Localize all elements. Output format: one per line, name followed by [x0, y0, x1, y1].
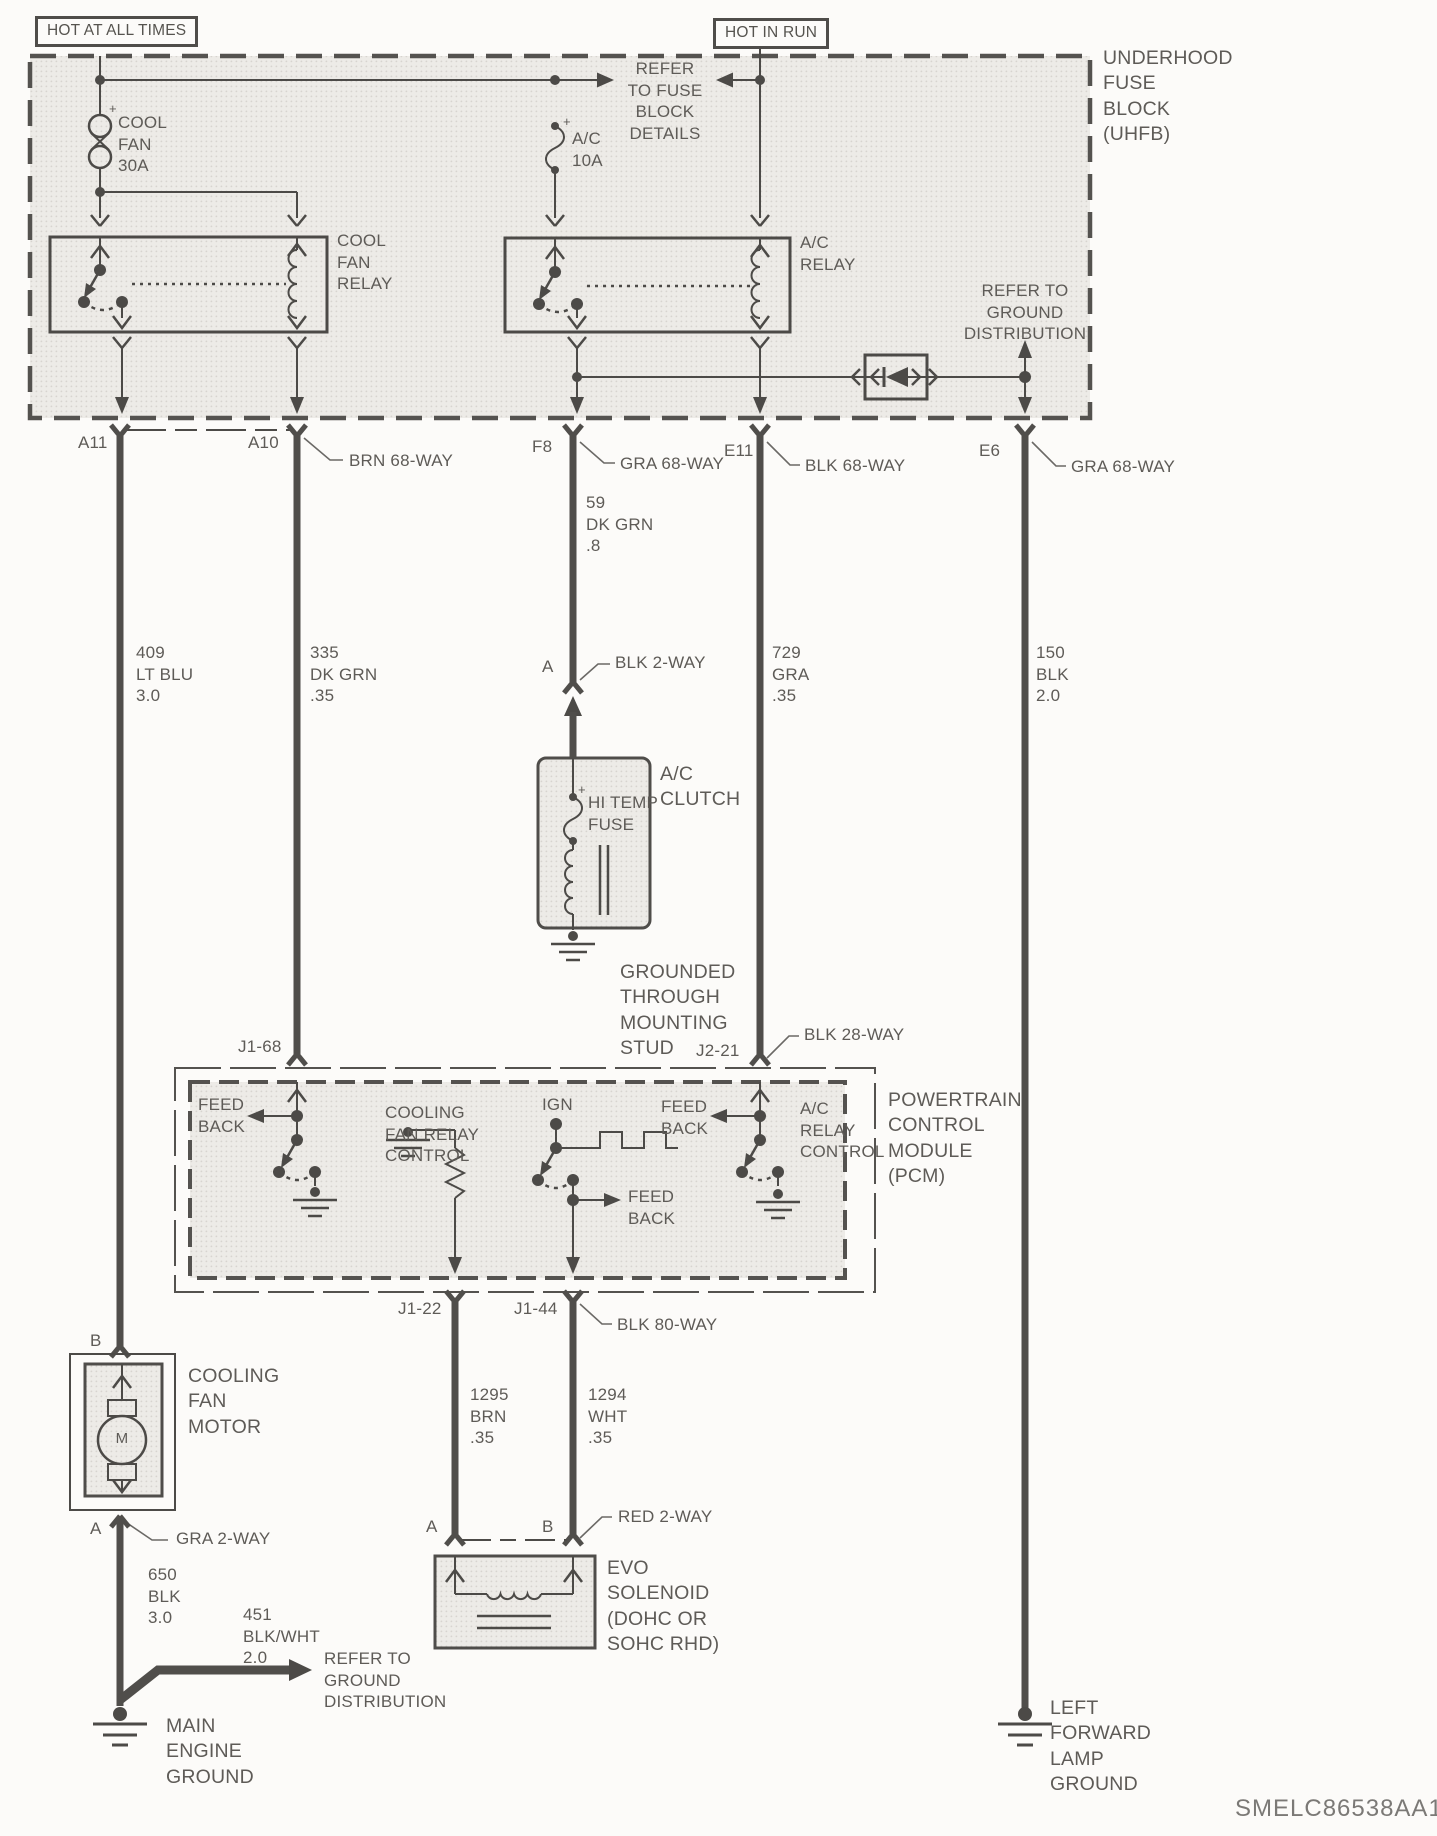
- pcm-title: POWERTRAIN CONTROL MODULE (PCM): [888, 1088, 1022, 1189]
- refer-fuse-details-note: REFER TO FUSE BLOCK DETAILS: [628, 58, 703, 144]
- cool-fan-fuse-label: COOL FAN 30A: [118, 112, 167, 177]
- hi-temp-fuse-plus: +: [578, 782, 586, 799]
- wire-729-gra: 729 GRA .35: [772, 642, 809, 707]
- conn-blk-80-way: BLK 80-WAY: [617, 1314, 717, 1336]
- feed-back-ign: FEED BACK: [628, 1186, 675, 1229]
- conn-gra-68-way-f8: GRA 68-WAY: [620, 453, 724, 475]
- pin-j2-21: J2-21: [696, 1040, 740, 1062]
- acrc-label: A/C RELAY CONTROL: [800, 1098, 885, 1163]
- cool-fan-fuse-plus: +: [109, 101, 117, 118]
- pin-a11: A11: [78, 432, 108, 454]
- pcm-output-wires: [446, 1291, 582, 1545]
- uhfb-title: UNDERHOOD FUSE BLOCK (UHFB): [1103, 46, 1233, 147]
- pin-e6: E6: [979, 440, 1000, 462]
- main-engine-ground-label: MAIN ENGINE GROUND: [166, 1714, 254, 1790]
- conn-brn-68-way: BRN 68-WAY: [349, 450, 453, 472]
- ac-clutch-title: A/C CLUTCH: [660, 762, 740, 813]
- evo-title: EVO SOLENOID (DOHC OR SOHC RHD): [607, 1556, 719, 1657]
- wire-1294-wht: 1294 WHT .35: [588, 1384, 627, 1449]
- ac-fuse-plus: +: [563, 114, 571, 131]
- wire-409-lt-blu: 409 LT BLU 3.0: [136, 642, 193, 707]
- pin-j1-68: J1-68: [238, 1036, 282, 1058]
- motor-pin-b: B: [90, 1330, 102, 1352]
- wiring-diagram-page: HOT AT ALL TIMES HOT IN RUN UNDERHOOD FU…: [0, 0, 1437, 1836]
- conn-blk-68-way: BLK 68-WAY: [805, 455, 905, 477]
- ac-fuse-label: A/C 10A: [572, 128, 603, 171]
- document-id: SMELC86538AA1: [1235, 1794, 1437, 1824]
- pcm-box: [175, 1068, 875, 1292]
- motor-pin-a: A: [90, 1518, 102, 1540]
- ac-clutch-symbol: [538, 758, 650, 960]
- left-forward-lamp-ground-label: LEFT FORWARD LAMP GROUND: [1050, 1696, 1151, 1797]
- ac-relay-label: A/C RELAY: [800, 232, 856, 275]
- pin-e11: E11: [724, 440, 754, 462]
- conn-blk-28-way: BLK 28-WAY: [804, 1024, 904, 1046]
- conn-gra-2-way: GRA 2-WAY: [176, 1528, 270, 1550]
- left-forward-lamp-ground-symbol: [998, 1707, 1052, 1745]
- wire-150-blk: 150 BLK 2.0: [1036, 642, 1069, 707]
- cooling-fan-motor-symbol: [70, 1354, 175, 1706]
- pin-f8: F8: [532, 436, 552, 458]
- wire-650-blk: 650 BLK 3.0: [148, 1564, 181, 1629]
- cooling-fan-motor-title: COOLING FAN MOTOR: [188, 1364, 279, 1440]
- hi-temp-fuse-label: HI TEMP FUSE: [588, 792, 658, 835]
- hot-in-run-label: HOT IN RUN: [713, 18, 829, 49]
- wire-59-dk-grn: 59 DK GRN .8: [586, 492, 653, 557]
- evo-pin-a: A: [426, 1516, 438, 1538]
- refer-ground-top-note: REFER TO GROUND DISTRIBUTION: [964, 280, 1086, 345]
- pin-j1-44: J1-44: [514, 1298, 558, 1320]
- feed-back-cfrc: FEED BACK: [198, 1094, 245, 1137]
- conn-gra-68-way-e6: GRA 68-WAY: [1071, 456, 1175, 478]
- feed-back-acrc: FEED BACK: [661, 1096, 708, 1139]
- wire-451-blk-wht: 451 BLK/WHT 2.0: [243, 1604, 320, 1669]
- cool-fan-relay-label: COOL FAN RELAY: [337, 230, 393, 295]
- conn-blk-2-way: BLK 2-WAY: [615, 652, 706, 674]
- evo-solenoid-symbol: [435, 1556, 595, 1648]
- pin-j1-22: J1-22: [398, 1298, 442, 1320]
- conn-red-2-way: RED 2-WAY: [618, 1506, 712, 1528]
- clutch-pin-a: A: [542, 656, 554, 678]
- hot-at-all-times-label: HOT AT ALL TIMES: [35, 16, 198, 47]
- wire-335-dk-grn: 335 DK GRN .35: [310, 642, 377, 707]
- ign-label: IGN: [542, 1094, 573, 1116]
- refer-ground-bottom-note: REFER TO GROUND DISTRIBUTION: [324, 1648, 446, 1713]
- cfrc-label: COOLING FAN RELAY CONTROL: [385, 1102, 479, 1167]
- motor-m-symbol: M: [111, 1429, 133, 1448]
- pin-a10: A10: [248, 432, 279, 454]
- wire-1295-brn: 1295 BRN .35: [470, 1384, 509, 1449]
- evo-pin-b: B: [542, 1516, 554, 1538]
